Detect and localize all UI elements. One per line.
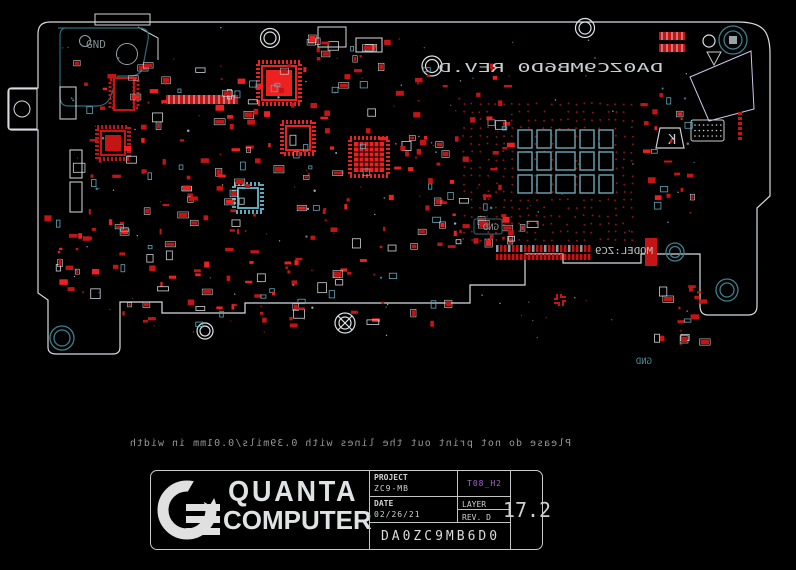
title-block: QUANTA COMPUTER PROJECT ZC9-MB T08_H2 DA… <box>150 470 543 550</box>
logo-line1: QUANTA <box>228 477 366 507</box>
gnd-label-right: GND <box>636 357 652 367</box>
board-model-text: MODEL:ZC9 <box>595 246 653 257</box>
date-label: DATE <box>374 499 457 508</box>
variant-cell: T08_H2 <box>457 471 511 497</box>
hole-center-pad <box>729 36 737 44</box>
svg-text:GND: GND <box>483 223 499 233</box>
bracket-outline <box>690 51 754 121</box>
quanta-logo-icon <box>156 477 222 543</box>
date-value: 02/26/21 <box>374 510 457 519</box>
board-number-cell: DA0ZC9MB6D0 <box>370 523 511 549</box>
bracket-hole-large <box>117 44 138 65</box>
top-connector-tab <box>95 14 150 25</box>
logo-line2: COMPUTER <box>223 507 371 534</box>
project-cell: PROJECT ZC9-MB <box>370 471 457 497</box>
print-warning-text: Please do not print out the lines with 0… <box>0 438 700 449</box>
pcb-boardview: K DA0ZC9MB6D0 REV.D MODEL:ZC9 GND GND GN… <box>0 0 796 570</box>
title-table: PROJECT ZC9-MB T08_H2 DATE 02/26/21 LAYE… <box>369 471 511 549</box>
thickness-cell: 17.2 <box>510 471 543 549</box>
date-cell: DATE 02/26/21 <box>370 497 457 523</box>
dotted-pad-square <box>691 120 724 141</box>
project-label: PROJECT <box>374 473 457 482</box>
pad-array <box>518 130 613 193</box>
triangle-marker <box>707 52 721 65</box>
logo-text: QUANTA COMPUTER <box>223 477 371 534</box>
board-rev-text: DA0ZC9MB6D0 REV.D <box>438 61 663 75</box>
gnd-label-top-left: GND <box>86 38 106 51</box>
project-value: ZC9-MB <box>374 484 457 493</box>
